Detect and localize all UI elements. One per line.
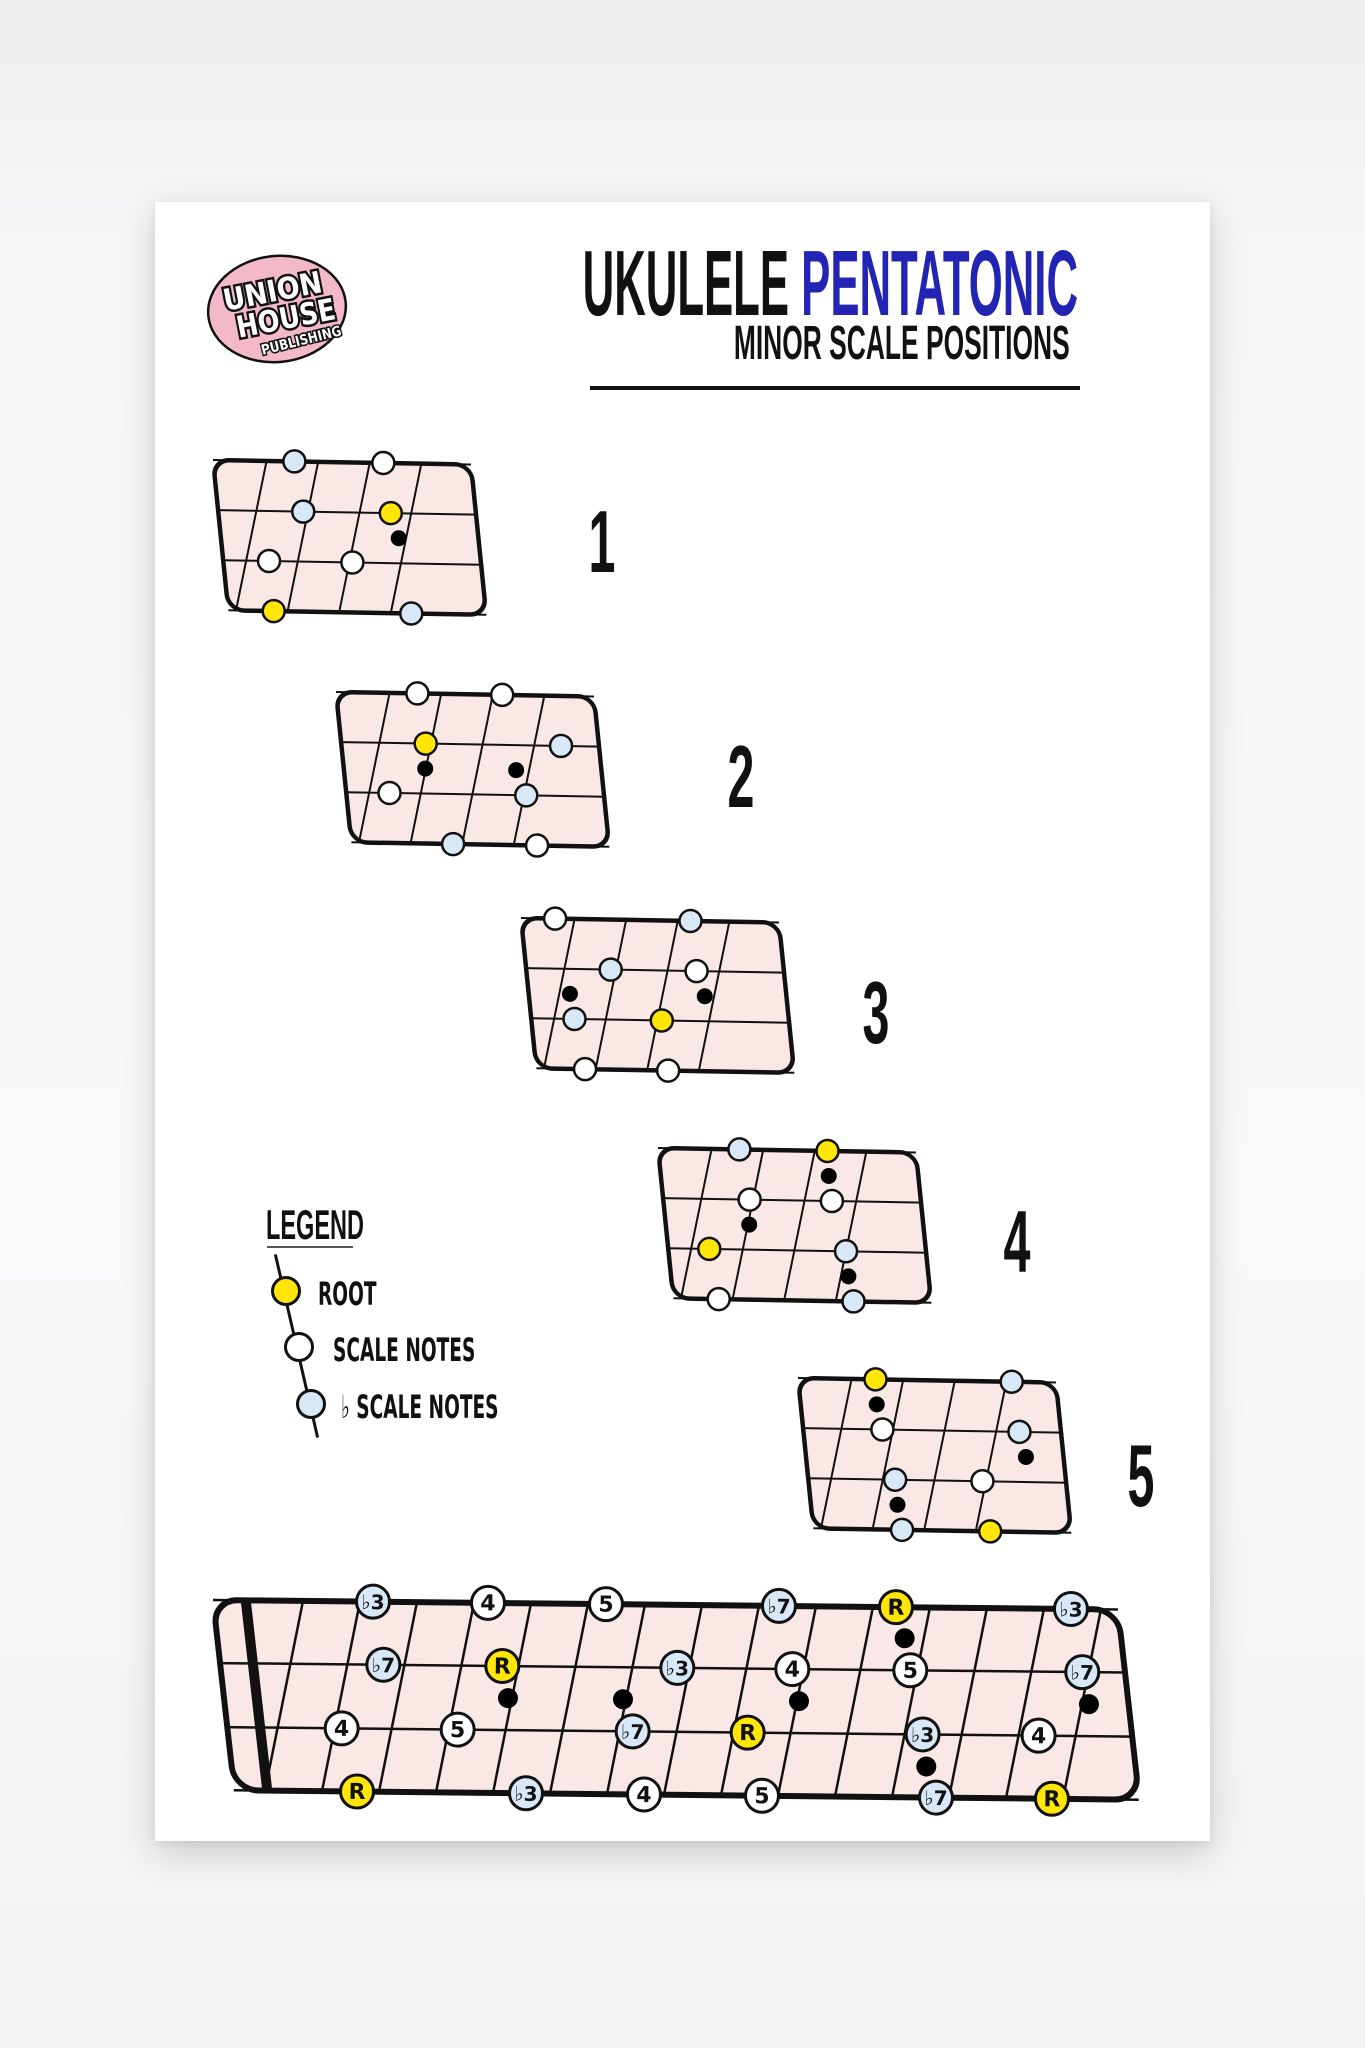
position-1-diagram [203, 443, 508, 638]
svg-text:♭3: ♭3 [514, 1782, 538, 1806]
position-3-number: 3 [863, 969, 890, 1057]
svg-text:R: R [887, 1596, 904, 1621]
position-2-diagram [326, 675, 631, 870]
svg-text:♭7: ♭7 [621, 1720, 645, 1744]
position-3-diagram [511, 901, 816, 1096]
legend-scale-dot [284, 1332, 314, 1362]
legend-flat-dot [296, 1389, 326, 1419]
svg-text:R: R [739, 1721, 756, 1746]
position-4-number: 4 [1004, 1198, 1031, 1286]
legend-scale-label: SCALE NOTES [333, 1334, 475, 1366]
legend-root-dot [271, 1276, 301, 1306]
title-underline [590, 386, 1080, 390]
svg-text:♭3: ♭3 [666, 1656, 690, 1680]
svg-text:R: R [1043, 1787, 1060, 1812]
svg-text:R: R [494, 1654, 511, 1679]
svg-text:4: 4 [785, 1657, 801, 1682]
position-5-number: 5 [1128, 1432, 1155, 1520]
svg-text:4: 4 [1031, 1724, 1047, 1749]
svg-text:4: 4 [334, 1717, 350, 1742]
position-2-number: 2 [728, 733, 755, 821]
legend-heading: LEGEND [266, 1204, 364, 1246]
svg-text:5: 5 [903, 1659, 919, 1684]
svg-text:♭3: ♭3 [361, 1590, 385, 1614]
svg-text:R: R [348, 1780, 365, 1805]
legend-root-label: ROOT [318, 1278, 377, 1310]
svg-text:♭7: ♭7 [924, 1786, 948, 1810]
legend-underline [267, 1246, 353, 1248]
svg-text:5: 5 [450, 1718, 466, 1743]
svg-text:♭3: ♭3 [1059, 1597, 1083, 1621]
svg-text:♭7: ♭7 [372, 1653, 396, 1677]
full-fretboard-diagram: ♭345♭7R♭3♭7R♭345♭745♭7R♭34R♭345♭7R [201, 1558, 1191, 1848]
page-subtitle: MINOR SCALE POSITIONS [734, 320, 1070, 368]
svg-text:♭7: ♭7 [767, 1594, 791, 1618]
svg-text:♭7: ♭7 [1070, 1660, 1094, 1684]
position-5-diagram [788, 1361, 1093, 1556]
svg-text:♭3: ♭3 [911, 1723, 935, 1747]
legend-flat-label: ♭ SCALE NOTES [341, 1391, 499, 1423]
position-1-number: 1 [589, 498, 616, 586]
svg-text:5: 5 [598, 1593, 614, 1618]
publisher-logo: UNION HOUSE PUBLISHING [190, 246, 365, 376]
svg-text:4: 4 [480, 1591, 496, 1616]
svg-text:5: 5 [754, 1784, 770, 1809]
svg-text:4: 4 [636, 1783, 652, 1808]
position-4-diagram [648, 1131, 953, 1326]
